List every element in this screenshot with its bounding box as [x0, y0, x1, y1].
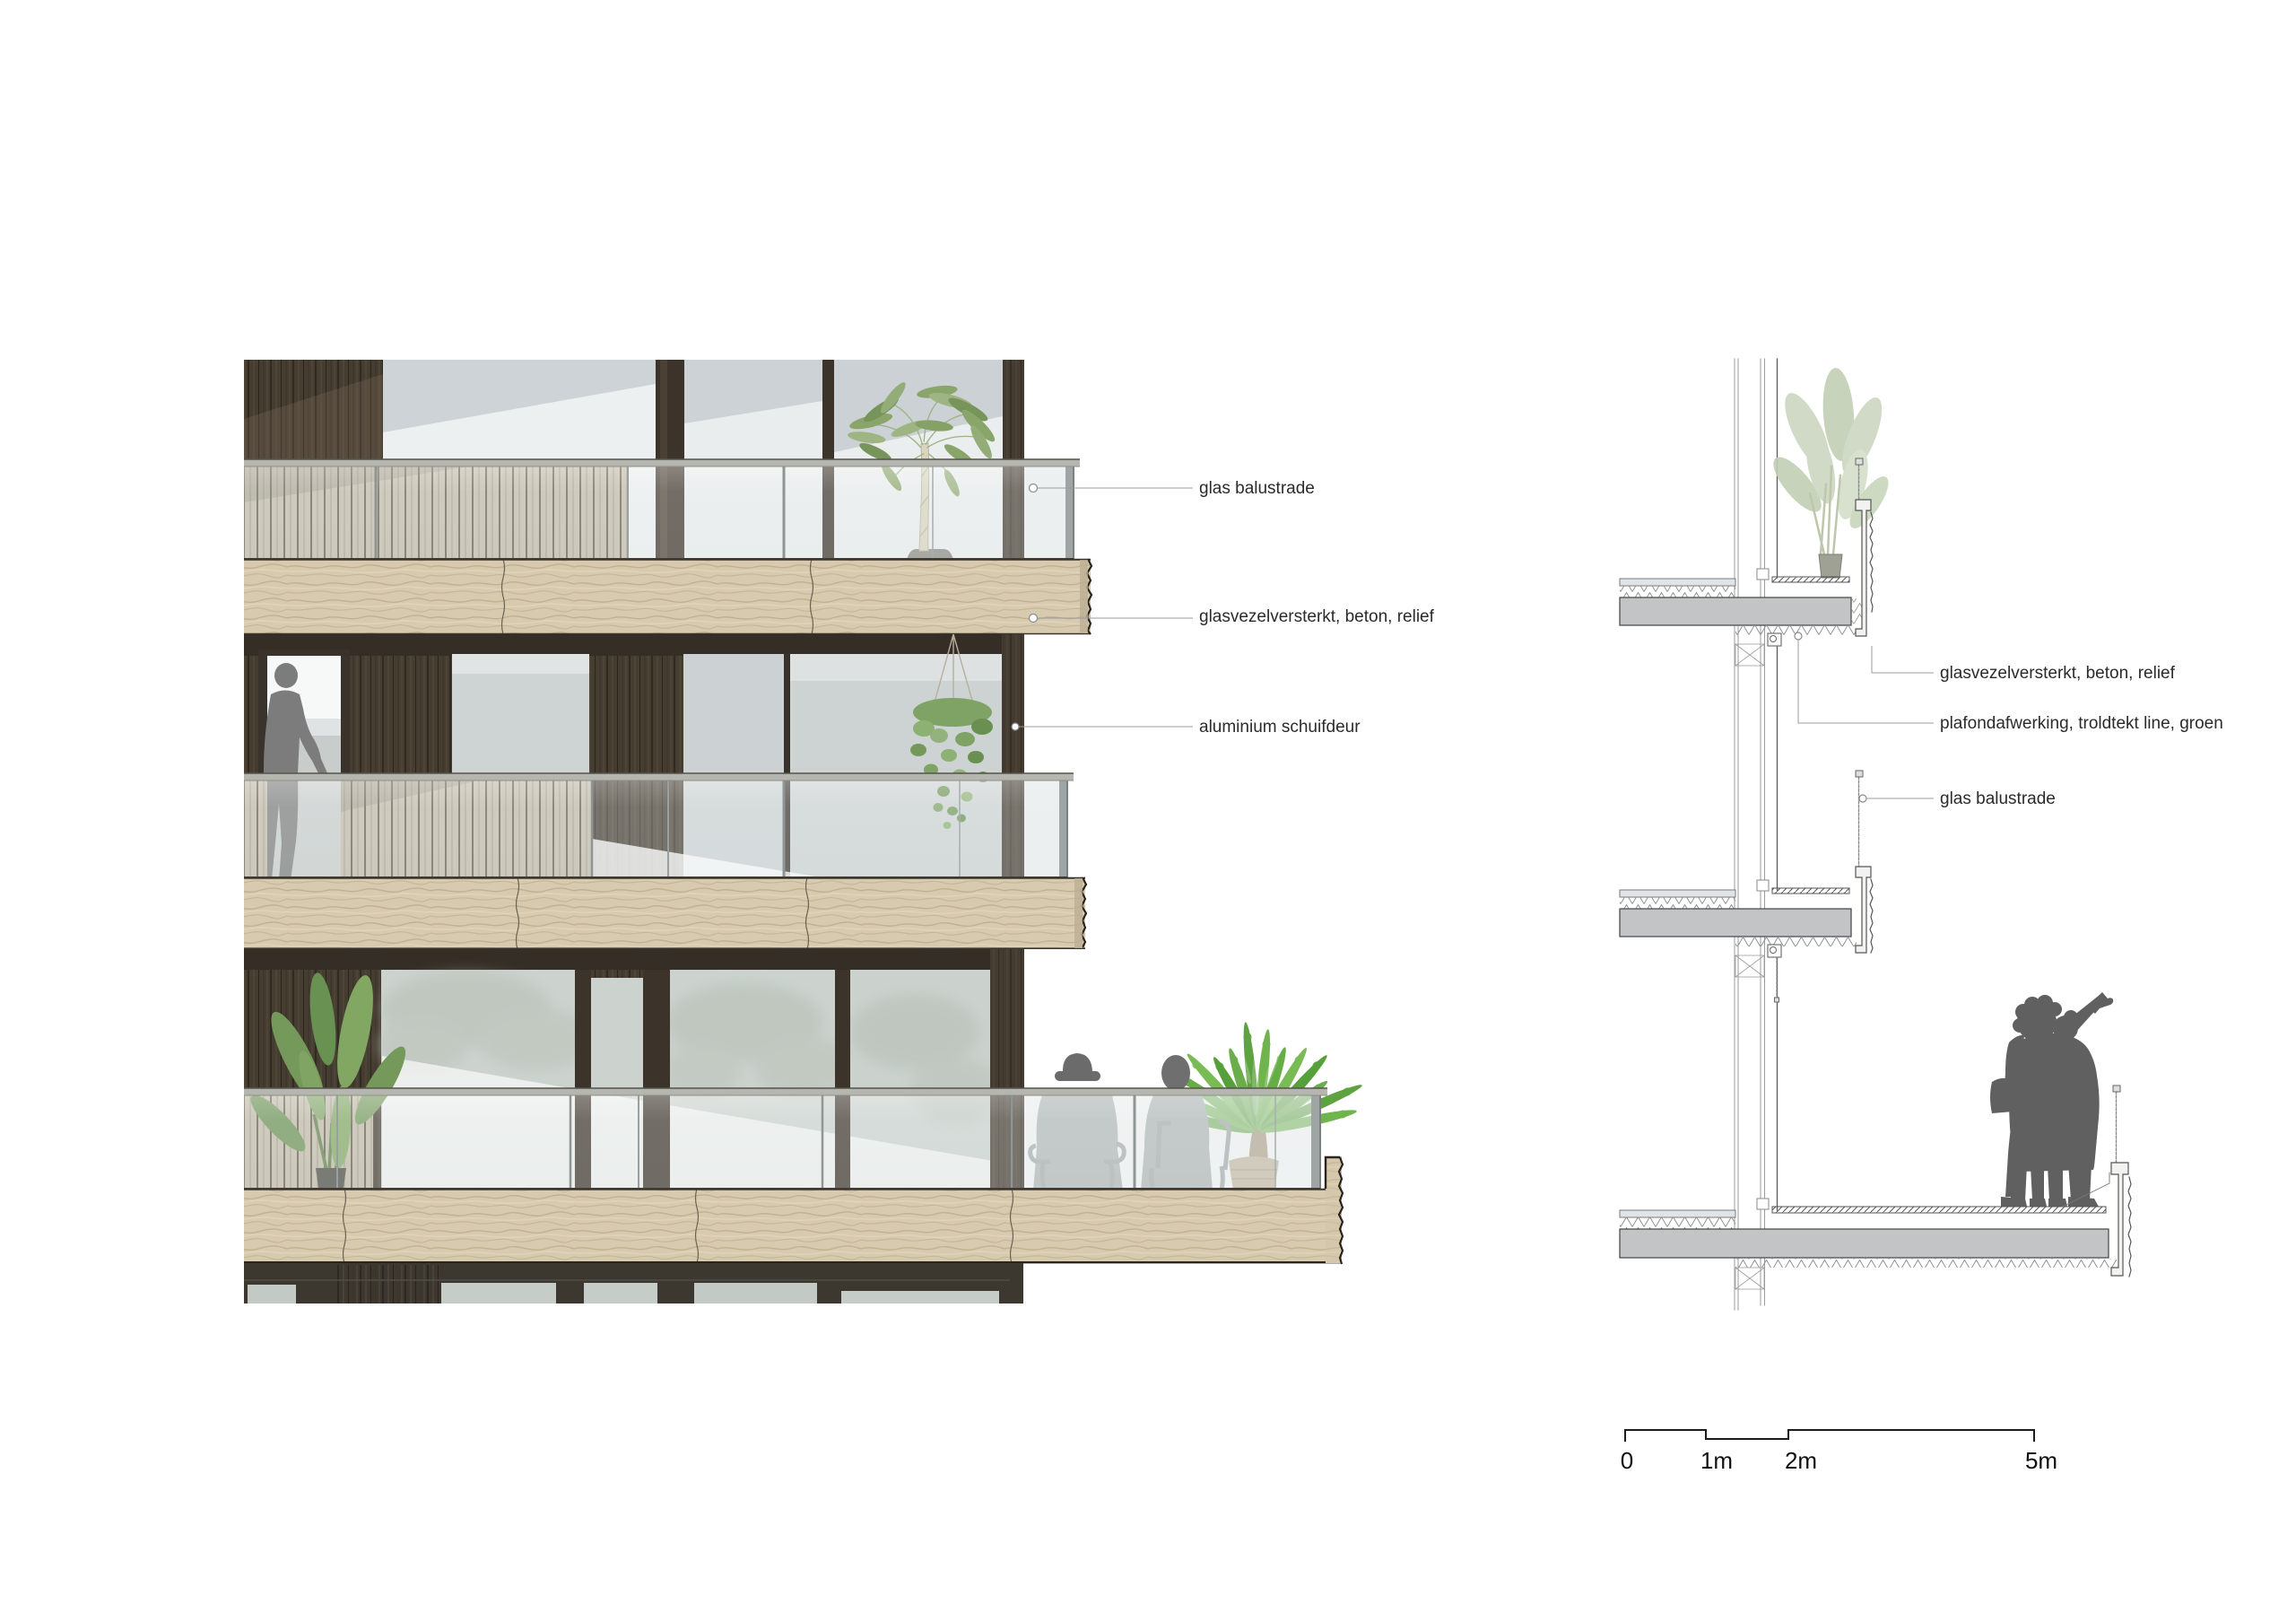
- svg-text:2m: 2m: [1785, 1447, 1817, 1474]
- svg-text:glasvezelversterkt, beton, rel: glasvezelversterkt, beton, relief: [1940, 664, 2176, 683]
- svg-text:glas balustrade: glas balustrade: [1940, 789, 2056, 808]
- svg-text:5m: 5m: [2025, 1447, 2057, 1474]
- svg-text:0: 0: [1621, 1447, 1633, 1474]
- svg-text:glasvezelversterkt, beton, rel: glasvezelversterkt, beton, relief: [1199, 607, 1435, 626]
- svg-text:1m: 1m: [1700, 1447, 1733, 1474]
- svg-text:glas balustrade: glas balustrade: [1199, 479, 1315, 498]
- svg-text:plafondafwerking, troldtekt li: plafondafwerking, troldtekt line, groen: [1940, 714, 2223, 733]
- svg-text:aluminium schuifdeur: aluminium schuifdeur: [1199, 718, 1361, 737]
